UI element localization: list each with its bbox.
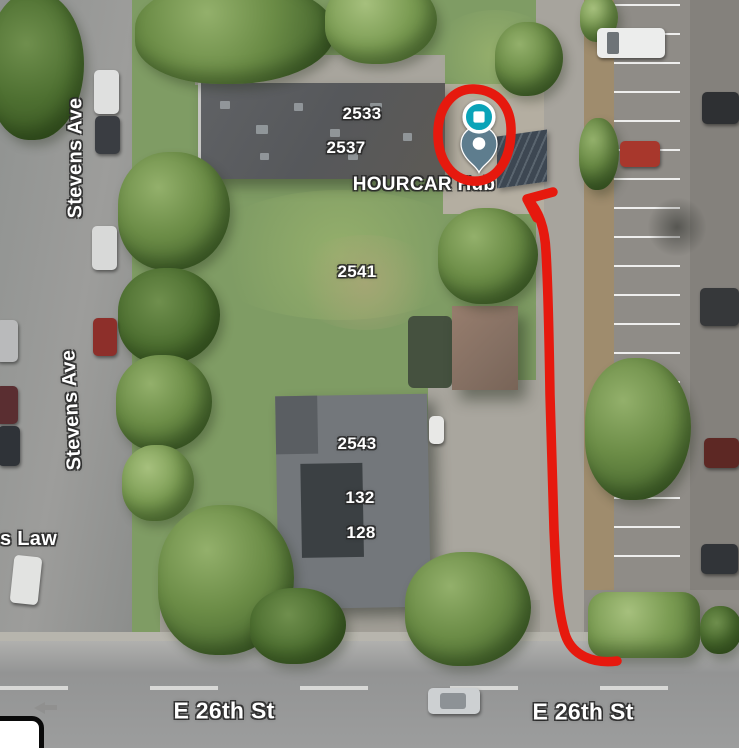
- parked-car: [93, 318, 117, 356]
- attribution-card-corner[interactable]: [0, 716, 44, 748]
- street-label-e-26th-st-east: E 26th St: [532, 699, 633, 726]
- car-on-road: [428, 688, 480, 714]
- pin-hole: [473, 137, 486, 150]
- map-markers: [444, 86, 516, 178]
- parking-median-dirt: [584, 0, 614, 590]
- white-vehicle-parcel: [429, 416, 444, 444]
- parked-car: [0, 320, 18, 362]
- roof-vent: [256, 125, 268, 134]
- street-label-stevens-ave-north: Stevens Ave: [65, 98, 88, 219]
- tree: [438, 208, 538, 304]
- roof-inner-dark: [300, 463, 364, 558]
- parked-car: [702, 92, 739, 124]
- roof-vent: [220, 101, 230, 109]
- address-label-2543: 2543: [337, 434, 376, 454]
- road-center-dashes: [0, 686, 739, 690]
- car-windows: [440, 693, 466, 709]
- parked-car: [0, 426, 20, 466]
- satellite-map[interactable]: Stevens Ave Stevens Ave E 26th St E 26th…: [0, 0, 739, 748]
- red-car-lot: [620, 141, 660, 167]
- bushes: [700, 606, 739, 654]
- hub-square-glyph: [473, 111, 484, 122]
- street-label-e-26th-st-west: E 26th St: [173, 698, 274, 725]
- parked-car: [701, 544, 738, 574]
- address-label-2533: 2533: [342, 104, 381, 124]
- parked-van: [10, 555, 43, 606]
- address-label-2537: 2537: [326, 138, 365, 158]
- roof-vent: [330, 129, 340, 137]
- roof-section-dark: [275, 396, 318, 455]
- parked-car: [704, 438, 739, 468]
- address-label-2541: 2541: [337, 262, 376, 282]
- roof-vent: [294, 103, 303, 111]
- tree: [116, 355, 212, 451]
- tree: [118, 268, 220, 364]
- garden-beds: [588, 592, 700, 658]
- building-2533-roof: [198, 83, 445, 179]
- white-truck: [597, 28, 665, 58]
- address-label-132: 132: [345, 488, 374, 508]
- poi-label-law-partial: s Law: [0, 528, 57, 551]
- parked-car: [700, 288, 739, 326]
- garage-annex-dark: [408, 316, 452, 388]
- address-label-128: 128: [346, 523, 375, 543]
- roof-vent: [260, 153, 269, 160]
- lane-arrow-marking-tail: [45, 705, 57, 710]
- car-shadow: [648, 196, 706, 258]
- tree: [122, 445, 194, 521]
- garage-brown-roof: [452, 306, 518, 390]
- parked-car: [0, 386, 18, 424]
- roof-vent: [403, 133, 412, 141]
- parked-car: [94, 70, 119, 114]
- lane-arrow-marking: [34, 702, 45, 714]
- truck-windshield: [607, 32, 619, 54]
- parked-car: [92, 226, 117, 270]
- parked-car: [95, 116, 120, 154]
